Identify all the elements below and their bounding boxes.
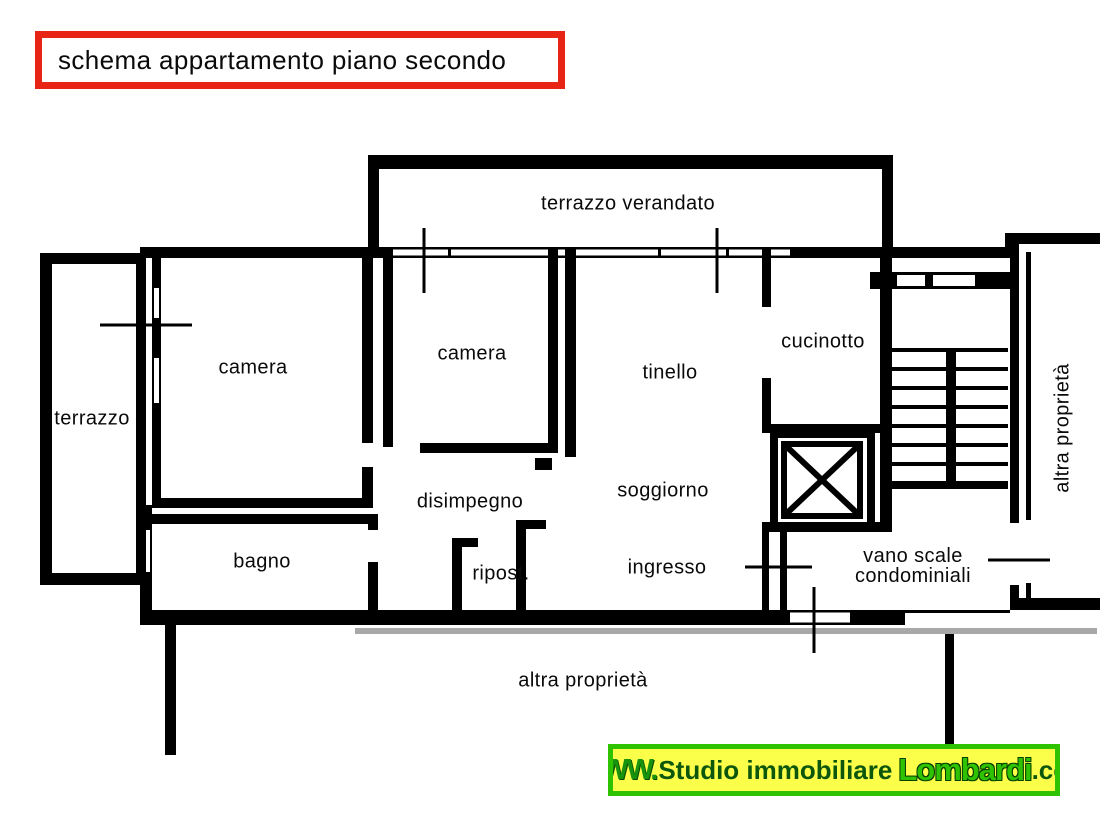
staircase [892, 350, 1008, 489]
room-label-terrazzo: terrazzo [54, 408, 129, 431]
vano-scale-line-2: condominiali [855, 566, 971, 586]
watermark-www: WWW. [608, 754, 656, 787]
title-box: schema appartamento piano secondo [35, 31, 565, 89]
elevator-x-icon [784, 444, 860, 516]
label-altra-proprieta-bottom: altra proprietà [518, 670, 647, 693]
floor-plan-drawing [0, 0, 1100, 825]
page-title: schema appartamento piano secondo [42, 45, 506, 76]
floor-plan-page: schema appartamento piano secondo terraz… [0, 0, 1100, 825]
room-label-ripostiglio: ripost. [472, 563, 529, 586]
room-label-disimpegno: disimpegno [417, 491, 523, 514]
room-label-camera-1: camera [218, 357, 287, 380]
room-label-terrazzo-verandato: terrazzo verandato [541, 193, 715, 216]
room-label-vano-scale: vano scale condominiali [855, 546, 971, 586]
room-label-ingresso: ingresso [628, 557, 707, 580]
shadow-line [355, 628, 1097, 634]
vano-scale-line-1: vano scale [855, 546, 971, 566]
label-altra-proprieta-right: altra proprietà [1052, 363, 1075, 492]
room-label-cucinotto: cucinotto [781, 331, 865, 354]
watermark-banner: WWW. Studio immobiliare Lombardi .com [608, 744, 1060, 796]
room-label-camera-2: camera [437, 343, 506, 366]
room-label-tinello: tinello [642, 362, 697, 385]
room-label-soggiorno: soggiorno [617, 480, 708, 503]
watermark-studio: Studio immobiliare [658, 755, 892, 786]
walls [40, 155, 1100, 755]
watermark-brand: Lombardi [898, 752, 1031, 788]
watermark-tld: .com [1032, 755, 1060, 786]
room-label-bagno: bagno [233, 551, 291, 574]
